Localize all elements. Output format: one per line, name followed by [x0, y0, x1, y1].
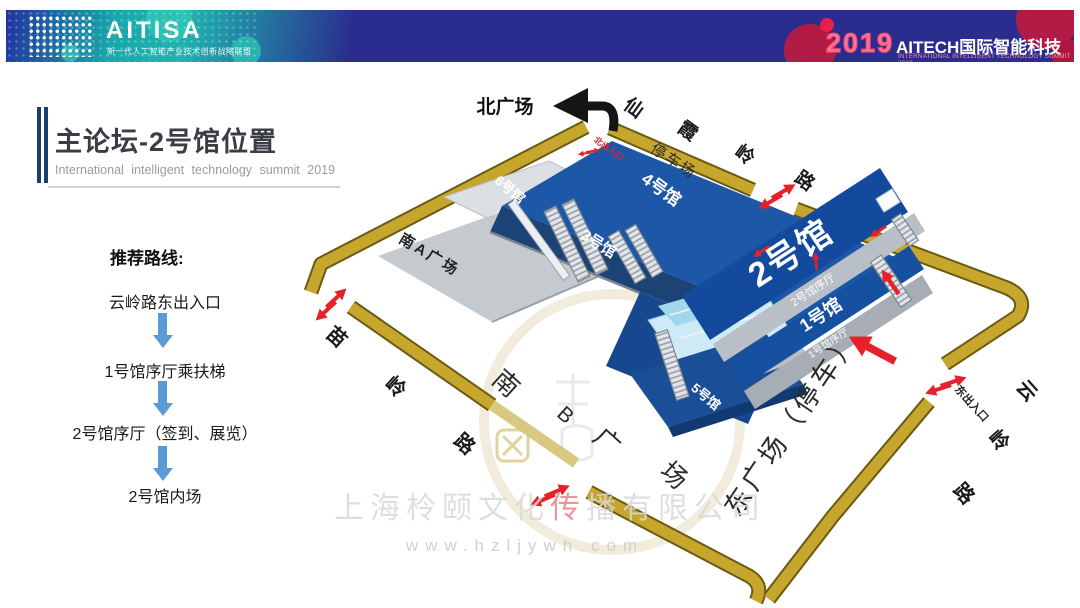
- svg-text:岭: 岭: [984, 425, 1015, 456]
- label-gate-east: 东出入口: [952, 382, 992, 424]
- watermark-url: www.hzljywh.com: [405, 536, 644, 555]
- title-rule: [48, 186, 340, 188]
- route-arrow-down-icon: [158, 446, 167, 468]
- label-north-plaza: 北广场: [476, 95, 533, 118]
- route-step-2: 1号馆序厅乘扶梯: [30, 358, 300, 382]
- svg-text:路: 路: [790, 166, 820, 196]
- title-accent-bar: [44, 107, 48, 183]
- header-banner: AITISA 新一代人工智能产业技术创新战略联盟 2019 AITECH国际智能…: [6, 10, 1074, 62]
- svg-text:上海柃颐文化传播有限公司: 上海柃颐文化传播有限公司: [334, 492, 766, 525]
- svg-text:路: 路: [449, 428, 481, 460]
- svg-text:场: 场: [654, 455, 693, 495]
- route-step-3: 2号馆序厅（签到、展览）: [30, 420, 300, 444]
- svg-text:岭: 岭: [730, 140, 759, 170]
- road-southwest: [351, 307, 492, 405]
- route-step-1: 云岭路东出入口: [30, 289, 300, 313]
- svg-text:仙: 仙: [619, 93, 648, 123]
- aitisa-ai-logo-icon: [28, 15, 94, 57]
- summit-year: 2019: [826, 28, 894, 59]
- route-step-4: 2号馆内场: [30, 483, 300, 507]
- title-accent-bar: [37, 107, 41, 183]
- route-arrow-down-icon: [158, 381, 167, 403]
- page-title-subtitle: International intelligent technology sum…: [55, 163, 335, 177]
- svg-text:霞: 霞: [673, 117, 702, 147]
- svg-text:路: 路: [949, 478, 981, 510]
- svg-text:云: 云: [1012, 376, 1042, 406]
- slide: 北广场 停车场 南A广场 东广场（停车） 南 B 广 场 仙 霞 岭 路 云 岭…: [0, 0, 1080, 608]
- aitisa-wordmark: AITISA: [106, 17, 203, 45]
- page-title: 主论坛-2号馆位置: [55, 120, 277, 159]
- svg-text:苗: 苗: [321, 321, 352, 352]
- svg-text:岭: 岭: [380, 371, 411, 402]
- route-heading: 推荐路线:: [110, 244, 184, 269]
- route-arrow-down-icon: [158, 313, 167, 335]
- summit-subtitle: INTERNATIONAL INTELLIGENT TECHNOLOGY SUM…: [898, 53, 1074, 62]
- aitisa-subtitle: 新一代人工智能产业技术创新战略联盟: [107, 46, 252, 57]
